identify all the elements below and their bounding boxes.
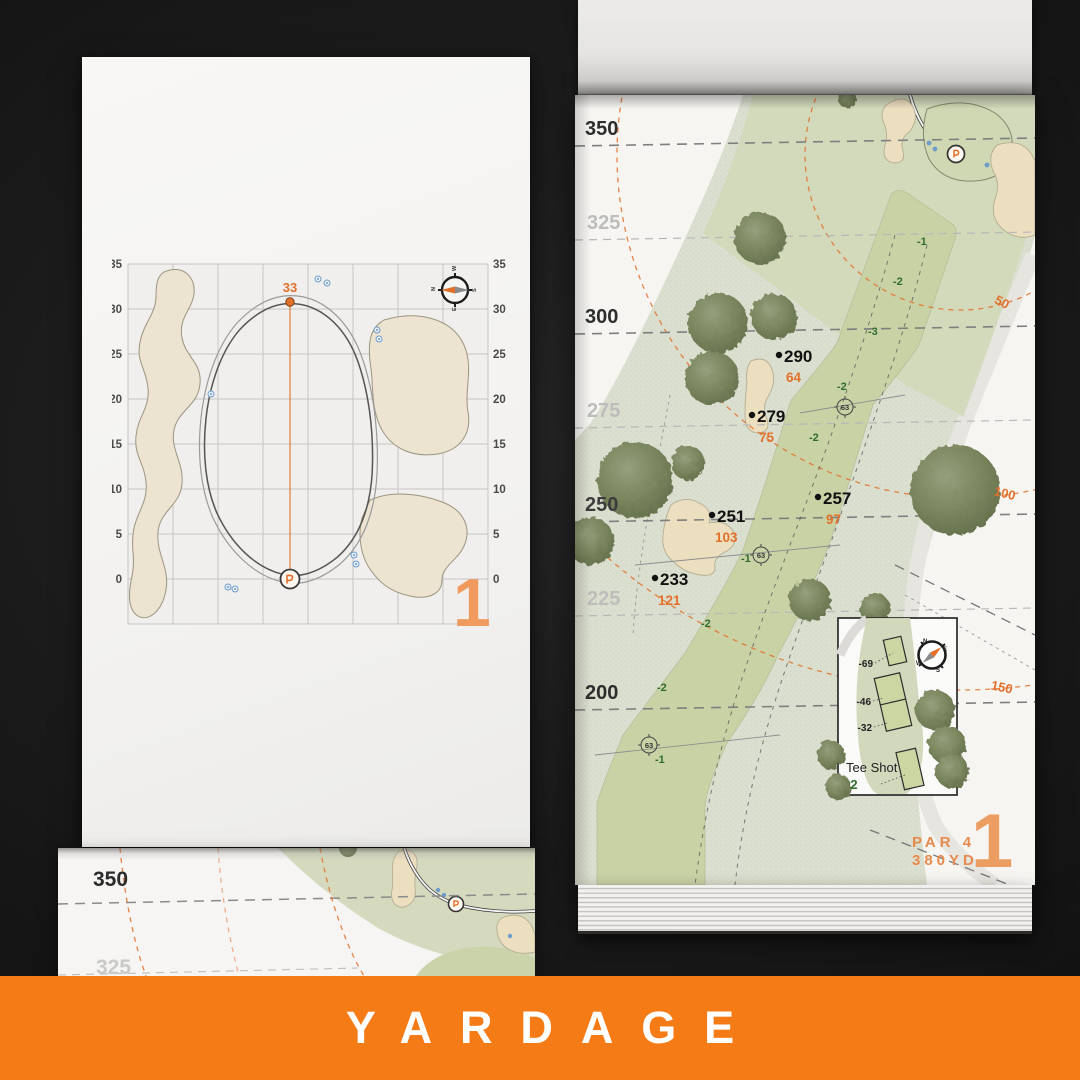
hole-map: 63 63 63 290 64 279 75 [575,95,1035,885]
tree-icon [688,293,748,353]
tree-icon [751,294,797,340]
svg-text:63: 63 [757,551,765,560]
tree-icon [817,741,845,769]
pin-depth-label: 33 [283,280,297,295]
svg-text:63: 63 [841,403,849,412]
fragment-map: 350 325 [58,848,535,976]
sprinkler-icon [508,934,512,938]
sprinkler-icon [324,280,330,286]
sprinkler-icon [315,276,321,282]
green-detail-page: 33 N W S E [82,57,530,847]
page-stack-edges [578,885,1032,934]
carry-label: 251 [717,507,745,526]
axis-tick-right: 30 [493,304,506,316]
elevation-note: -1 [917,236,927,248]
axis-tick-left: 5 [116,529,123,541]
axis-tick-right: 25 [493,349,506,361]
pin-dot [286,298,294,306]
to-green-label: 121 [658,593,681,608]
bunker-right-upper [369,316,468,455]
axis-tick-right: 15 [493,439,506,451]
axis-tick-right: 20 [493,394,506,406]
sprinkler-icon [376,336,382,342]
tree-icon [915,690,955,730]
hole-number: 1 [971,799,1013,884]
svg-text:S: S [936,668,940,674]
sprinkler-icon [442,893,446,897]
svg-text:S: S [472,288,478,292]
bunker [991,143,1035,238]
sprinkler-icon [927,141,932,146]
distance-label: 275 [587,400,620,422]
svg-text:N: N [923,639,927,645]
par-label: PAR 4 [912,834,975,851]
axis-tick-left: 30 [112,304,122,316]
fold-shadow [575,95,1035,109]
page-curl-shadow [58,848,535,860]
distance-label: 325 [96,956,131,976]
elevation-note: -2 [657,682,667,694]
sprinkler-icon [351,552,357,558]
elevation-note: -2 [809,432,819,444]
tree-icon [825,774,851,800]
tee-shot-inset: -69 -46 -32 Tee Shot -2 N E W S [817,618,969,800]
sprinkler-icon [353,561,359,567]
tee-offset: -69 [859,659,874,670]
svg-text:W: W [916,661,922,667]
sprinkler-icon [374,327,380,333]
page-gutter-shadow [575,95,591,885]
axis-tick-left: 15 [112,439,123,451]
elevation-note: -3 [868,326,878,338]
svg-text:63: 63 [645,741,653,750]
tee-shot-label: Tee Shot [846,760,898,775]
green-target-marker [449,897,464,912]
tree-icon [734,212,786,264]
axis-tick-left: 35 [112,259,123,271]
next-page-fragment: 350 325 [58,848,535,976]
axis-tick-left: 25 [112,349,123,361]
svg-text:W: W [452,265,458,271]
elevation-note: -1 [741,553,751,565]
carry-label: 279 [757,407,785,426]
sprinkler-icon [225,584,231,590]
tree-icon [671,446,705,480]
tree-icon [789,579,831,621]
distance-label: 350 [93,868,128,891]
hole-number: 1 [453,565,491,640]
green-target-marker [948,146,965,163]
carry-label: 257 [823,489,851,508]
sprinkler-icon [933,147,938,152]
banner-title: YARDAGE [0,976,1080,1080]
carry-label: 290 [784,347,812,366]
yards-label: 380YD [912,852,978,869]
sprinkler-icon [208,391,214,397]
distance-label: 225 [587,588,620,610]
banner: YARDAGE [0,976,1080,1080]
yardage-map-page: 63 63 63 290 64 279 75 [575,95,1035,885]
tree-icon [685,351,739,405]
axis-tick-left: 0 [116,574,122,586]
tree-icon [935,754,969,788]
distance-label: 325 [587,212,620,234]
folded-cover-page [578,0,1032,95]
green-detail-chart: 33 N W S E [112,250,508,640]
to-green-label: 97 [826,512,841,527]
to-green-label: 64 [786,370,802,385]
to-green-label: 75 [759,430,775,445]
sprinkler-icon [436,888,440,892]
axis-tick-right: 5 [493,529,500,541]
sprinkler-icon [985,163,990,168]
elevation-note: -2 [837,381,847,393]
sprinkler-icon [232,586,238,592]
elevation-note: -1 [655,754,665,766]
elevation-note: -2 [893,276,903,288]
tee-offset: -46 [857,697,872,708]
carry-label: 233 [660,570,688,589]
axis-tick-right: 0 [493,574,499,586]
axis-tick-left: 10 [112,484,122,496]
tree-icon [910,445,1000,535]
tee-offset: -32 [858,723,873,734]
svg-text:E: E [943,647,947,653]
svg-text:N: N [431,287,437,291]
green-entry-marker [281,570,300,589]
elevation-note: -2 [701,618,711,630]
axis-tick-right: 35 [493,259,506,271]
axis-tick-left: 20 [112,394,122,406]
axis-tick-right: 10 [493,484,506,496]
to-green-label: 103 [715,530,738,545]
svg-text:E: E [452,307,458,311]
